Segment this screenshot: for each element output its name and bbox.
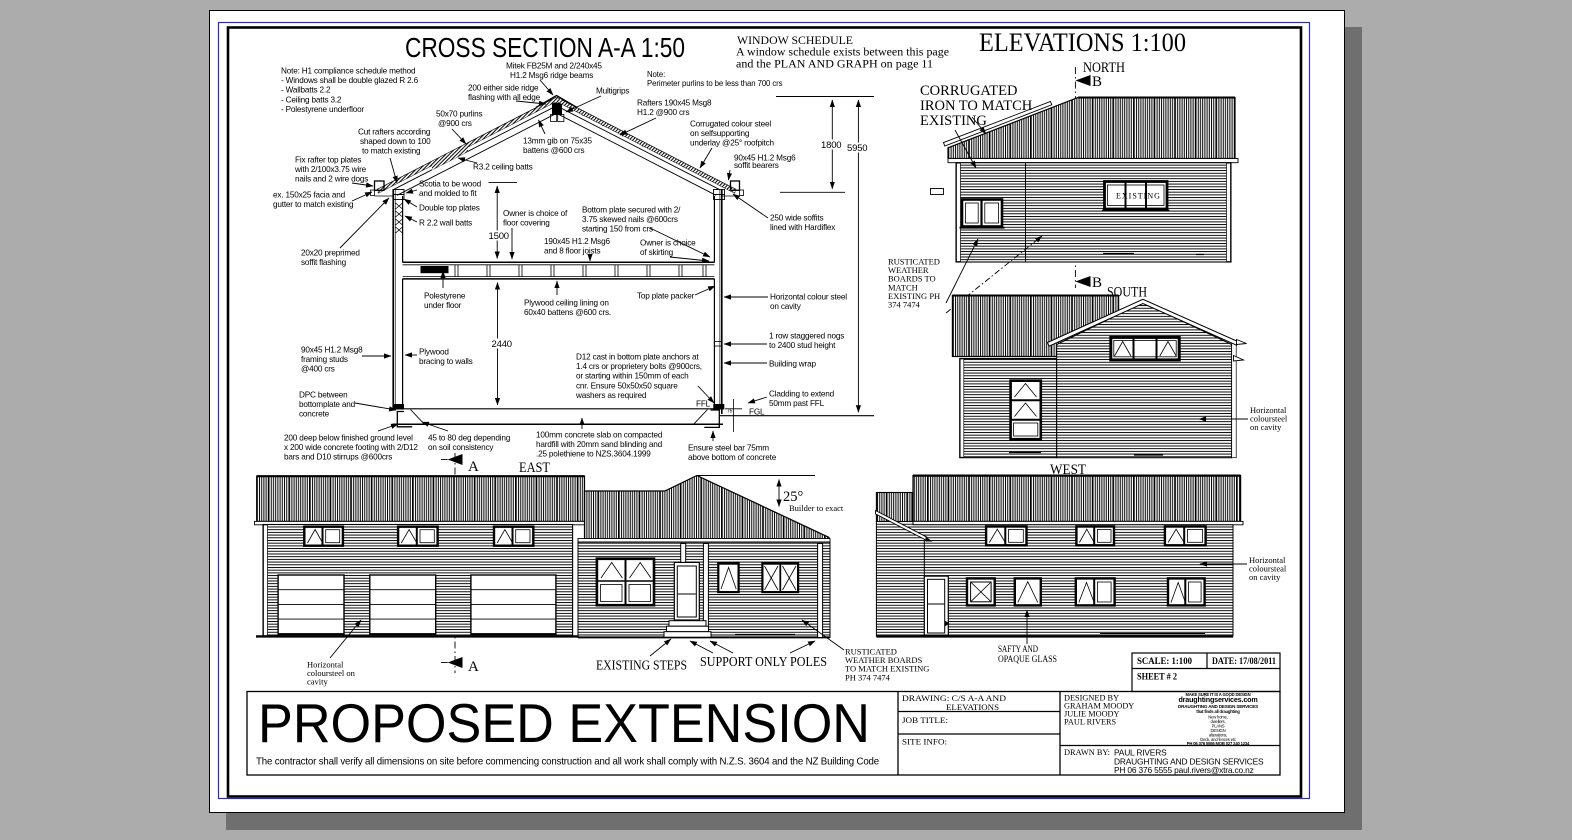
svg-text:CROSS SECTION A-A 1:50: CROSS SECTION A-A 1:50 [405, 32, 685, 63]
svg-text:EXISTING STEPS: EXISTING STEPS [596, 658, 687, 673]
svg-text:PH 06 376 5555 MOB 027 240 12: PH 06 376 5555 MOB 027 240 1234 [1187, 741, 1250, 746]
svg-text:Polestyreneunder floor: Polestyreneunder floor [424, 292, 466, 311]
svg-text:Fix rafter top plateswith 2/10: Fix rafter top plateswith 2/100x3.75 wir… [294, 156, 368, 184]
svg-text:Builder to exact: Builder to exact [789, 503, 844, 513]
svg-text:B: B [1092, 74, 1102, 90]
svg-text:DATE: 17/08/2011: DATE: 17/08/2011 [1212, 656, 1276, 666]
svg-text:R3.2 ceiling batts: R3.2 ceiling batts [473, 163, 533, 172]
svg-text:R 2.2 wall batts: R 2.2 wall batts [419, 219, 472, 228]
svg-text:JOB TITLE:: JOB TITLE: [902, 715, 948, 725]
svg-text:Mitek FB25M and 2/240x45H1.2 M: Mitek FB25M and 2/240x45H1.2 Msg6 ridge … [506, 62, 602, 81]
svg-text:75: 75 [727, 409, 733, 415]
svg-text:PROPOSED EXTENSION: PROPOSED EXTENSION [258, 692, 870, 754]
svg-text:that finds all draughting: that finds all draughting [1196, 709, 1240, 714]
svg-text:EXISTING: EXISTING [1116, 192, 1161, 201]
svg-text:SCALE: 1:100: SCALE: 1:100 [1137, 656, 1192, 666]
svg-text:FGL: FGL [749, 408, 765, 417]
svg-text:ex. 150x25 facia andgutter to: ex. 150x25 facia andgutter to match exis… [273, 191, 354, 210]
svg-text:draughtingservices.com: draughtingservices.com [1178, 695, 1257, 704]
svg-text:Cut rafters accordingshaped do: Cut rafters accordingshaped down to 100t… [358, 128, 431, 156]
svg-text:The contractor shall verify al: The contractor shall verify all dimensio… [256, 756, 879, 768]
svg-text:Plywood ceiling lining on60x40: Plywood ceiling lining on60x40 battens @… [524, 299, 611, 318]
svg-text:A: A [468, 659, 479, 675]
svg-text:Top plate packer: Top plate packer [637, 292, 695, 301]
svg-text:1800: 1800 [821, 140, 841, 151]
svg-text:Building wrap: Building wrap [769, 360, 816, 369]
svg-text:1 row staggered nogsto 2400 st: 1 row staggered nogsto 2400 stud height [769, 332, 844, 351]
svg-text:Multigrips: Multigrips [596, 87, 629, 96]
svg-text:Ensure steel bar 75mmabove bot: Ensure steel bar 75mmabove bottom of con… [688, 444, 777, 463]
svg-text:Scotia to be woodand molded to: Scotia to be woodand molded to fit [419, 180, 482, 199]
svg-text:SHEET # 2: SHEET # 2 [1137, 672, 1177, 682]
svg-text:200 either side ridgeflashing: 200 either side ridgeflashing with all e… [468, 84, 541, 103]
svg-text:DRAWN BY:: DRAWN BY: [1064, 747, 1110, 757]
svg-text:B: B [1092, 275, 1102, 291]
svg-text:13mm gib on 75x35battens @600: 13mm gib on 75x35battens @600 crs [523, 137, 592, 156]
svg-text:NORTH: NORTH [1083, 60, 1125, 76]
svg-text:FFL: FFL [696, 400, 711, 409]
svg-text:5950: 5950 [847, 143, 867, 154]
svg-text:100mm concrete slab on compact: 100mm concrete slab on compactedhardfill… [536, 431, 663, 459]
svg-text:SITE INFO:: SITE INFO: [902, 737, 947, 747]
svg-text:A: A [468, 459, 479, 475]
svg-text:ELEVATIONS 1:100: ELEVATIONS 1:100 [979, 28, 1186, 57]
svg-text:SUPPORT ONLY POLES: SUPPORT ONLY POLES [700, 654, 827, 669]
svg-text:and the PLAN AND GRAPH on page: and the PLAN AND GRAPH on page 11 [736, 59, 933, 71]
svg-text:WINDOW SCHEDULE: WINDOW SCHEDULE [737, 35, 853, 47]
svg-text:A window schedule exists betwe: A window schedule exists between this pa… [736, 47, 949, 59]
svg-text:1500: 1500 [489, 231, 509, 242]
svg-text:2440: 2440 [492, 339, 512, 350]
svg-text:Double top plates: Double top plates [419, 204, 480, 213]
svg-text:EAST: EAST [519, 460, 550, 476]
svg-text:ELEVATIONS: ELEVATIONS [946, 702, 999, 712]
